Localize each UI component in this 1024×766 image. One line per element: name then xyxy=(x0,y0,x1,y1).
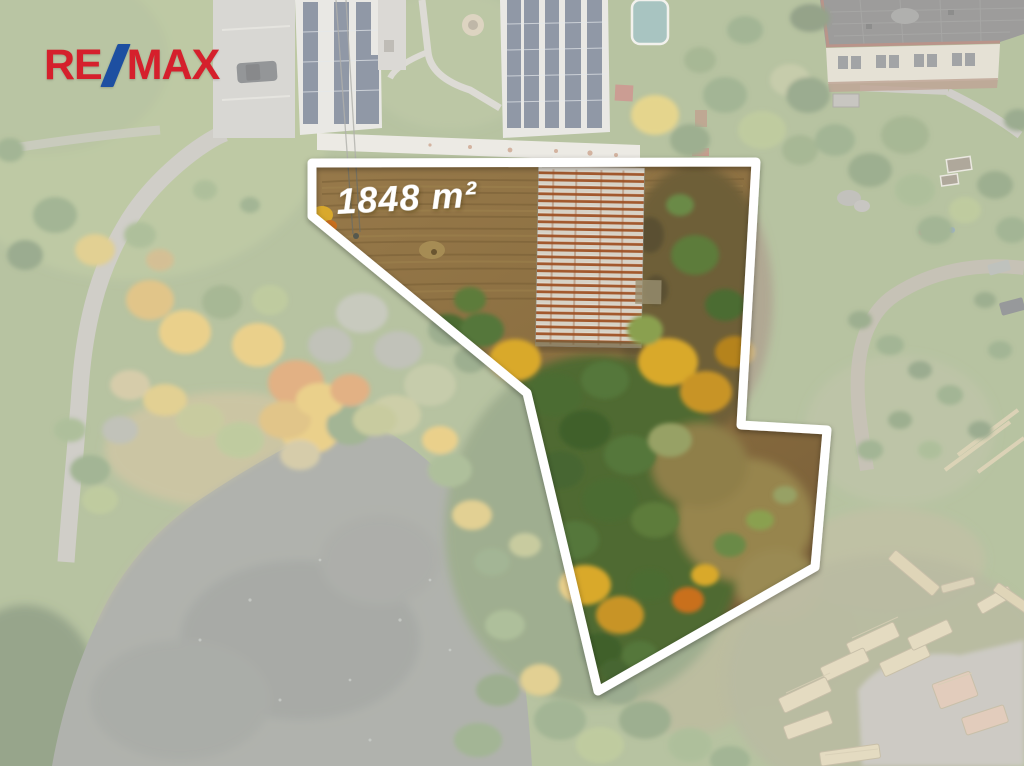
area-label: 1848 m² xyxy=(335,174,478,222)
property-listing-photo: 1848 m² RE MAX xyxy=(0,0,1024,766)
remax-logo: RE MAX xyxy=(44,44,219,87)
logo-max: MAX xyxy=(127,44,220,87)
aerial-photo: 1848 m² xyxy=(0,0,1024,766)
logo-re: RE xyxy=(44,44,102,87)
